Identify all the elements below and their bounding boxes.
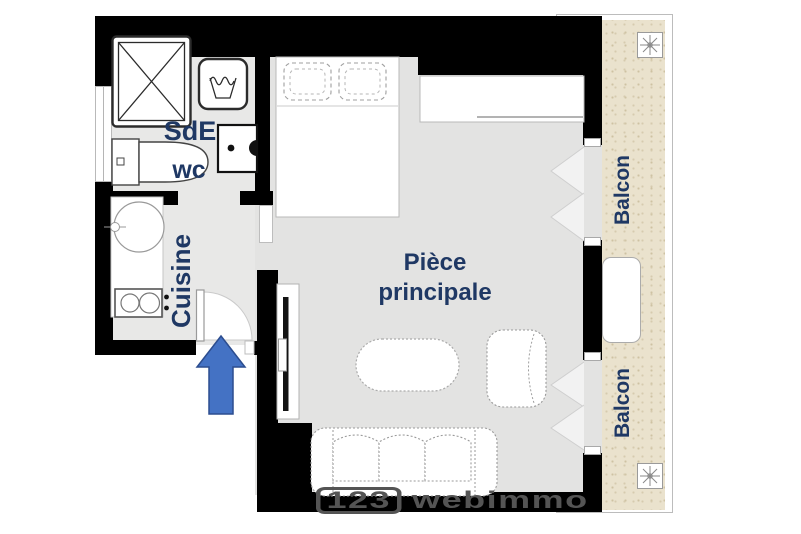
watermark-name: webimmo [412, 487, 589, 515]
sde-label: SdE [158, 116, 222, 147]
cuisine-label: Cuisine [166, 216, 196, 346]
wall-bathroom-kitchen [95, 191, 178, 205]
bathroom-window [95, 86, 112, 182]
wall-top [95, 16, 602, 57]
wc-label: wc [163, 156, 215, 185]
floor-plan: SdE wc Cuisine Pièce principale Balcon B… [0, 0, 801, 534]
watermark-123-box: 123 [316, 487, 402, 514]
entrance-arrow-icon [197, 336, 245, 414]
window-pane-line [103, 87, 104, 181]
balcony-table [602, 257, 641, 343]
window-sill [584, 138, 601, 147]
passage-door [259, 205, 273, 243]
balcon-upper-label: Balcon [611, 135, 635, 245]
wall-interior-upper [255, 16, 270, 205]
wall-left-upper [95, 16, 113, 86]
wall-left-lower [95, 182, 113, 355]
window-sill [584, 446, 601, 455]
balcon-lower-label: Balcon [611, 348, 635, 458]
wall-top-thick [418, 57, 602, 75]
main-room-label-line2: principale [345, 278, 525, 308]
plant-icon [637, 32, 663, 58]
watermark: 123 webimmo [316, 487, 589, 514]
wall-right-b [583, 240, 602, 360]
window-sill [584, 237, 601, 246]
wall-entrance-nub [254, 341, 278, 355]
plant-icon [637, 463, 663, 489]
main-room-label: Pièce principale [345, 248, 525, 308]
main-room-label-line1: Pièce [345, 248, 525, 278]
window-sill [584, 352, 601, 361]
wall-right-a [583, 75, 602, 145]
